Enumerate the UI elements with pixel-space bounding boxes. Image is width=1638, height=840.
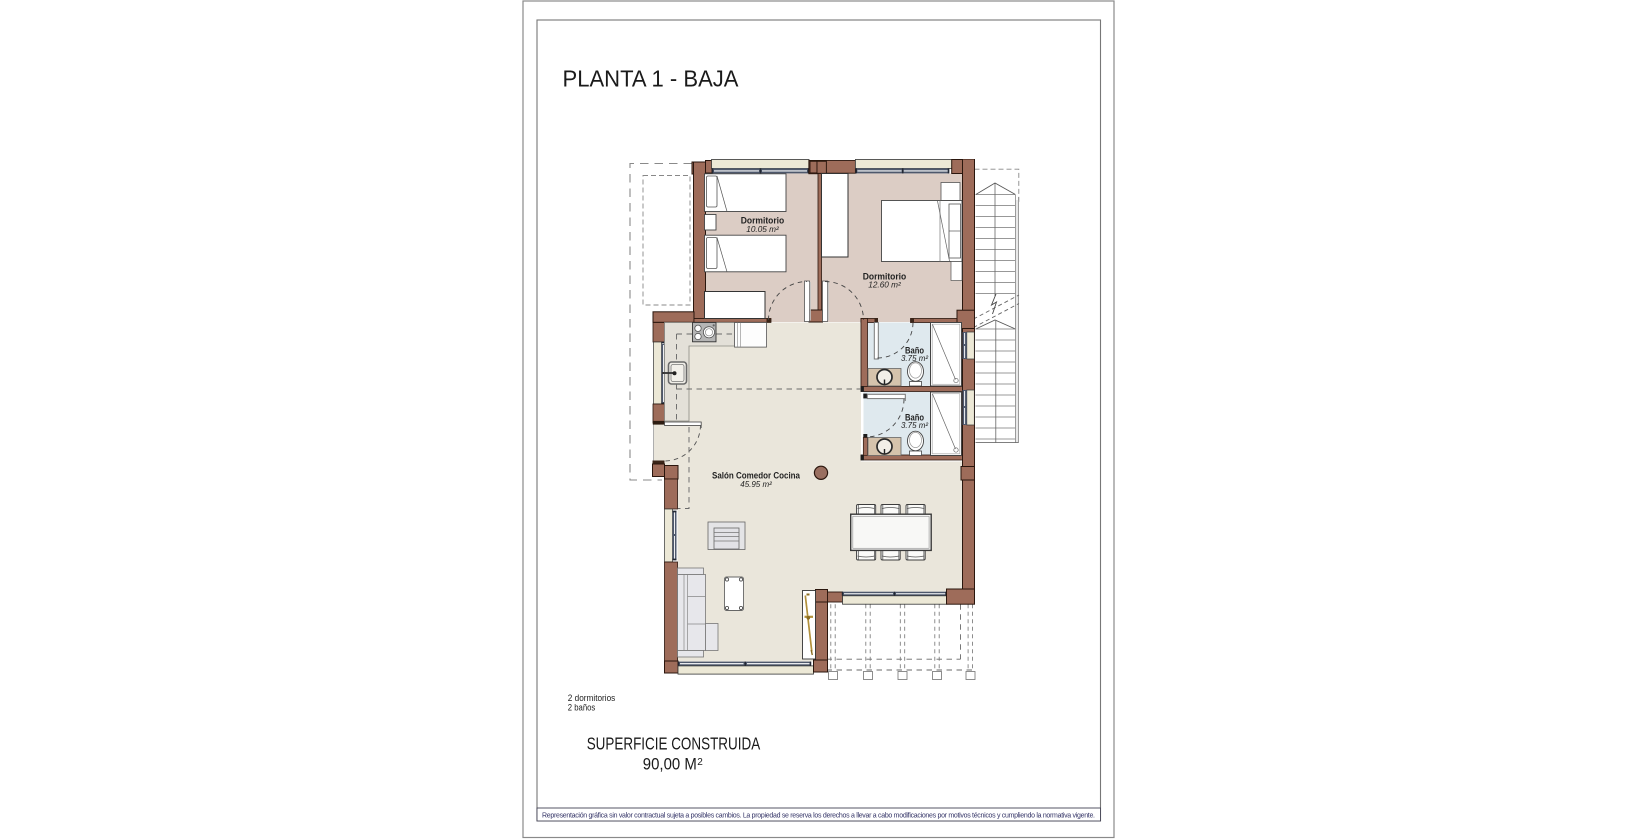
- svg-text:12.60 m²: 12.60 m²: [868, 280, 901, 289]
- svg-text:45.95 m²: 45.95 m²: [740, 480, 772, 489]
- svg-text:Representación gráfica sin val: Representación gráfica sin valor contrac…: [542, 813, 1095, 820]
- svg-text:10.05 m²: 10.05 m²: [746, 225, 779, 234]
- svg-text:2 baños: 2 baños: [568, 703, 596, 713]
- svg-text:2 dormitorios: 2 dormitorios: [568, 693, 616, 703]
- svg-text:90,00 M: 90,00 M: [643, 755, 697, 773]
- svg-text:3.75 m²: 3.75 m²: [901, 421, 928, 430]
- svg-text:3.75 m²: 3.75 m²: [901, 354, 928, 363]
- svg-text:SUPERFICIE CONSTRUIDA: SUPERFICIE CONSTRUIDA: [587, 734, 761, 754]
- svg-text:2: 2: [697, 757, 703, 768]
- svg-text:PLANTA 1 - BAJA: PLANTA 1 - BAJA: [563, 66, 739, 92]
